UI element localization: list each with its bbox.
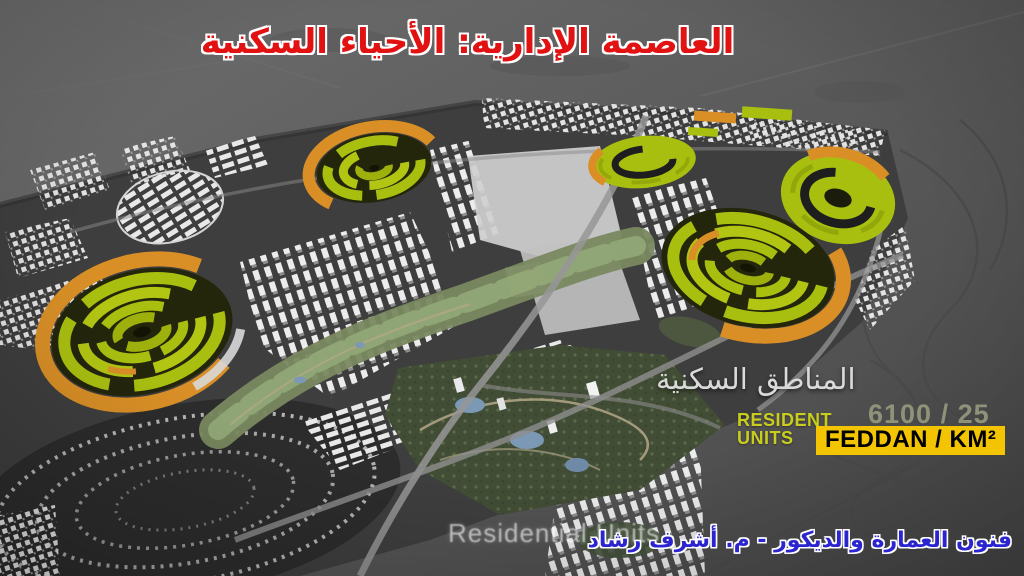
slide-title: العاصمة الإدارية: الأحياء السكنية xyxy=(0,22,935,62)
masterplan-render xyxy=(0,0,1024,576)
density-unit-badge: FEDDAN / KM² xyxy=(816,426,1005,455)
vignette xyxy=(0,0,1024,576)
region-label-arabic: المناطق السكنية xyxy=(656,362,856,396)
credit-line: فنون العمارة والديكور - م. أشرف رشاد xyxy=(588,528,1012,553)
slide-frame: العاصمة الإدارية: الأحياء السكنية المناط… xyxy=(0,0,1024,576)
